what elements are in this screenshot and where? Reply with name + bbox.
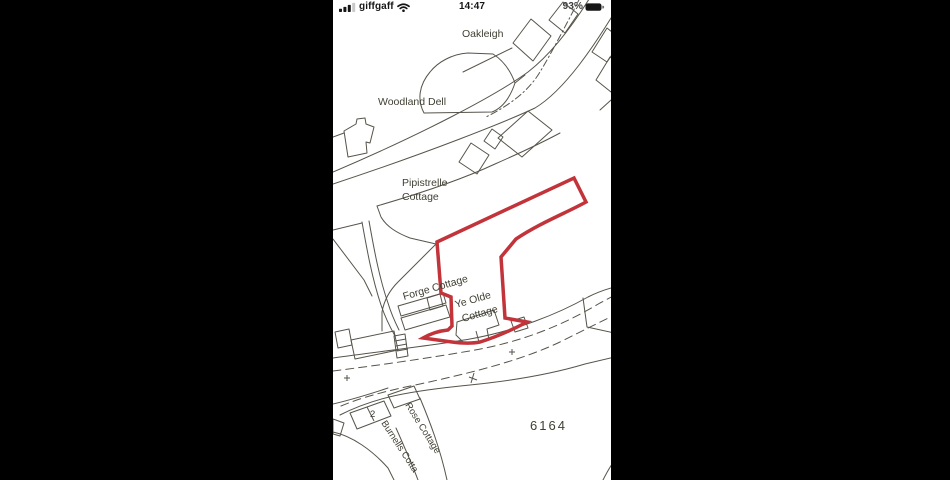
building-oakleigh xyxy=(513,19,551,61)
edge-left-short xyxy=(333,133,344,137)
plot-outline-red xyxy=(423,178,586,343)
footpath-line-1 xyxy=(362,222,395,336)
label-oakleigh: Oakleigh xyxy=(462,28,504,40)
road-edge-lower-bottom xyxy=(340,356,611,415)
label-house-2: 2 xyxy=(370,409,375,420)
street-edge-lower xyxy=(333,432,394,480)
roads-and-boundaries xyxy=(333,0,611,480)
building-pipistrelle-1 xyxy=(459,143,489,174)
plus-mark-left xyxy=(344,375,350,381)
fence-connector xyxy=(515,75,525,83)
building-topright-2 xyxy=(596,57,611,92)
letterbox-left xyxy=(0,0,333,480)
plus-mark-right xyxy=(509,349,515,355)
letterbox-right xyxy=(611,0,950,480)
survey-marks xyxy=(344,349,515,383)
building-forge-annex xyxy=(427,294,443,310)
building-road-row-left xyxy=(335,329,352,348)
label-burnells-cottage: Burnells Cotta xyxy=(378,419,420,476)
building-top-partial xyxy=(549,2,578,33)
boundary-left-diagonal xyxy=(333,239,372,296)
label-woodland-dell: Woodland Dell xyxy=(378,96,446,108)
parcel-line-right xyxy=(583,298,611,334)
gate-mark xyxy=(469,373,477,383)
phone-screen: giffgaff 14:47 93% xyxy=(333,0,611,480)
label-rose-cottage: Rose Cottage xyxy=(402,401,442,456)
map-labels: Oakleigh Woodland Dell Pipistrelle Cotta… xyxy=(370,28,567,475)
fence-oakleigh xyxy=(463,48,512,72)
line-top-right xyxy=(600,92,611,110)
label-pipistrelle-1: Pipistrelle xyxy=(402,177,448,189)
boundary-left-horizontal xyxy=(333,223,362,230)
curve-bottom-right xyxy=(603,454,611,480)
building-notched-left xyxy=(344,118,374,157)
label-pipistrelle-2: Cottage xyxy=(402,191,439,203)
building-pipistrelle-2 xyxy=(484,129,503,149)
building-ye-olde-notch xyxy=(476,331,479,342)
pipistrelle-plot-bottom xyxy=(377,206,436,244)
label-parcel-6164: 6164 xyxy=(530,418,567,433)
parcel-dotdash-upper xyxy=(486,0,581,117)
os-plan-map[interactable]: Oakleigh Woodland Dell Pipistrelle Cotta… xyxy=(333,0,611,480)
screenshot-stage: giffgaff 14:47 93% xyxy=(0,0,950,480)
street-edge-upper xyxy=(333,388,388,404)
road-edge-upper-1 xyxy=(333,0,591,172)
